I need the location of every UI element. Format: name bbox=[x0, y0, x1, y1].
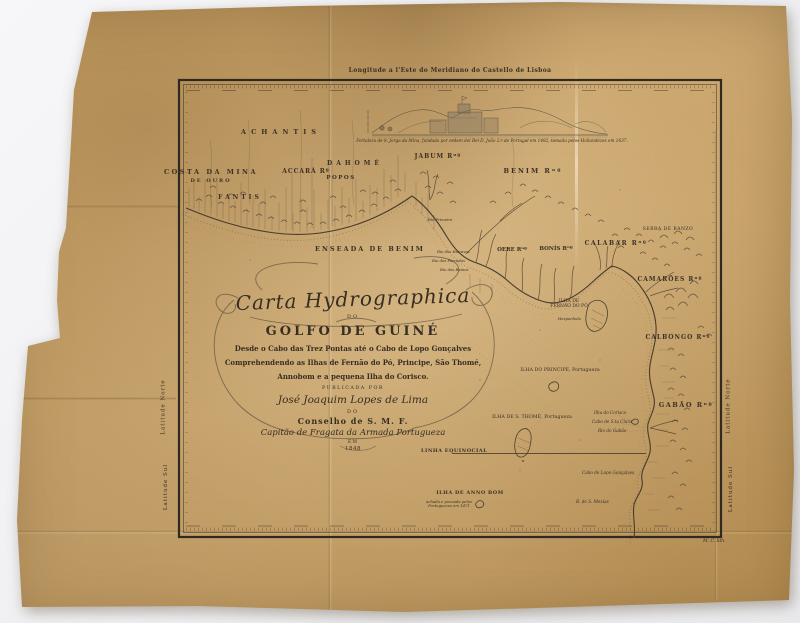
title-cartouche: Carta Hydrographica DO GOLFO DE GUINÉ De… bbox=[222, 287, 484, 452]
region-label-camaroes: CAMARÕES Rⁿº bbox=[637, 277, 702, 283]
region-label-jabum: JABUM Rⁿº bbox=[415, 154, 462, 160]
cartouche-rank: Capitão de Fragata da Armada Portugueza bbox=[222, 428, 484, 438]
cartouche-council: Conselho de S. M. F. bbox=[222, 416, 484, 426]
island-corisco bbox=[632, 419, 639, 424]
islet-rolas bbox=[522, 460, 524, 462]
latitude-south-right-label: Latitude Sul bbox=[728, 466, 734, 512]
cartouche-main-title: GOLFO DE GUINÉ bbox=[222, 324, 484, 339]
coast-label-rio-forcados: Rio dos Forcados bbox=[432, 259, 465, 263]
region-label-serra: SERRA DE BANZO bbox=[643, 228, 693, 233]
page: { "map": { "margins": { "top_longitude_l… bbox=[0, 0, 800, 623]
tree bbox=[388, 127, 392, 131]
island-label-sao-thome: ILHA DE S. THOMÉ, Portugueza bbox=[492, 415, 572, 420]
latitude-north-right-label: Latitude Norte bbox=[726, 378, 732, 433]
coast-label-cabo-lopo: Cabo de Lopo Gonçalves bbox=[582, 471, 634, 475]
region-label-fantis: FANTIS bbox=[218, 195, 262, 201]
island-note-fernao: Hespanhola bbox=[558, 317, 581, 321]
cartouche-do-2: DO bbox=[222, 409, 484, 415]
cartouche-subtitle-1: Desde o Cabo das Trez Pontas até o Cabo … bbox=[222, 344, 484, 353]
island-principe bbox=[549, 382, 559, 391]
region-label-de-ouro: DE OURO bbox=[190, 179, 231, 184]
coast-label-rio-escravos: Rio dos Escravos bbox=[437, 250, 470, 254]
region-label-costa-da-mina: COSTA DA MINA bbox=[164, 169, 258, 176]
region-label-calabar: CALABAR Rⁿº bbox=[585, 241, 648, 247]
top-longitude-label: Longitude a l'Este do Meridiano do Caste… bbox=[349, 68, 552, 74]
coast-label-cabo-sta-clara: Cabo de S.ta Clara bbox=[592, 420, 632, 424]
flag-pole bbox=[462, 96, 467, 104]
cartouche-subtitle-2: Comprehendendo as Ilhas de Fernão do Pó,… bbox=[222, 358, 484, 367]
fortress-view bbox=[367, 96, 608, 141]
region-label-popos: POPOS bbox=[326, 176, 355, 182]
region-label-benim: BENIM Rⁿº bbox=[504, 168, 563, 175]
fortress-building bbox=[430, 96, 498, 133]
cartouche-author: José Joaquim Lopes de Lima bbox=[222, 394, 484, 406]
latitude-north-left-label: Latitude Norte bbox=[161, 379, 167, 434]
longitude-ruler-top bbox=[186, 87, 714, 91]
region-label-dahome: DAHOMÉ bbox=[327, 161, 383, 167]
island-note-anno-bom: achada e povoada pelos Portuguezes em 14… bbox=[426, 500, 472, 508]
region-label-gabao: GABÃO Rⁿº bbox=[659, 402, 714, 409]
island-label-fernao-do-po: ILHA DE FERNÃO DO PÓ bbox=[550, 300, 588, 310]
cartouche-published-by: PUBLICADA POR bbox=[222, 386, 484, 391]
island-sao-thome bbox=[515, 429, 531, 457]
map-sheet-wrapper: Longitude a l'Este do Meridiano do Caste… bbox=[0, 0, 800, 623]
island-label-anno-bom: ILHA DE ANNO BOM bbox=[436, 491, 503, 496]
region-label-enseada-de-benim: ENSEADA DE BENIM bbox=[315, 246, 425, 253]
tree bbox=[380, 126, 384, 130]
coast-label-rio-ramos: Rio dos Ramos bbox=[440, 268, 468, 272]
cartouche-subtitle-3: Annobom e a pequena Ilha do Corisco. bbox=[222, 372, 484, 381]
coast-label-baia-mexias: B. de S. Mexias bbox=[576, 500, 609, 504]
cartouche-do: DO bbox=[222, 314, 484, 320]
region-label-calbongo: CALBONGO Rⁿº bbox=[645, 335, 710, 341]
aged-paper-sheet: Longitude a l'Este do Meridiano do Caste… bbox=[0, 0, 800, 623]
latitude-south-left-label: Latitude Sul bbox=[163, 464, 169, 510]
coast-label-rio-primeiro: Rio Primeiro bbox=[428, 218, 452, 222]
region-label-achantis: ACHANTIS bbox=[241, 129, 321, 136]
equator-label: LINHA EQUINOCIAL bbox=[421, 449, 487, 454]
fortress-view-caption: Fortaleza de S. Jorge da Mina, fundada p… bbox=[356, 139, 628, 143]
region-label-bonis: BONÍS Rⁿº bbox=[539, 247, 572, 253]
region-label-oere: OERE Rⁿº bbox=[497, 248, 527, 254]
cartouche-script-title: Carta Hydrographica bbox=[222, 282, 485, 315]
island-label-principe: ILHA DO PRINCIPE, Portugueza bbox=[520, 368, 599, 373]
region-label-accara: ACCARÁ Rº bbox=[282, 169, 330, 175]
cartouche-em: EM bbox=[222, 440, 484, 445]
coast-label-rio-do-gabao: Rio do Gabão bbox=[598, 429, 626, 433]
label-leader-lines bbox=[528, 375, 648, 475]
lithographer-credit: M. C. lith. bbox=[703, 540, 726, 545]
island-label-corisco: Ilha do Corisco bbox=[594, 411, 626, 415]
island-anno-bom bbox=[476, 501, 484, 508]
